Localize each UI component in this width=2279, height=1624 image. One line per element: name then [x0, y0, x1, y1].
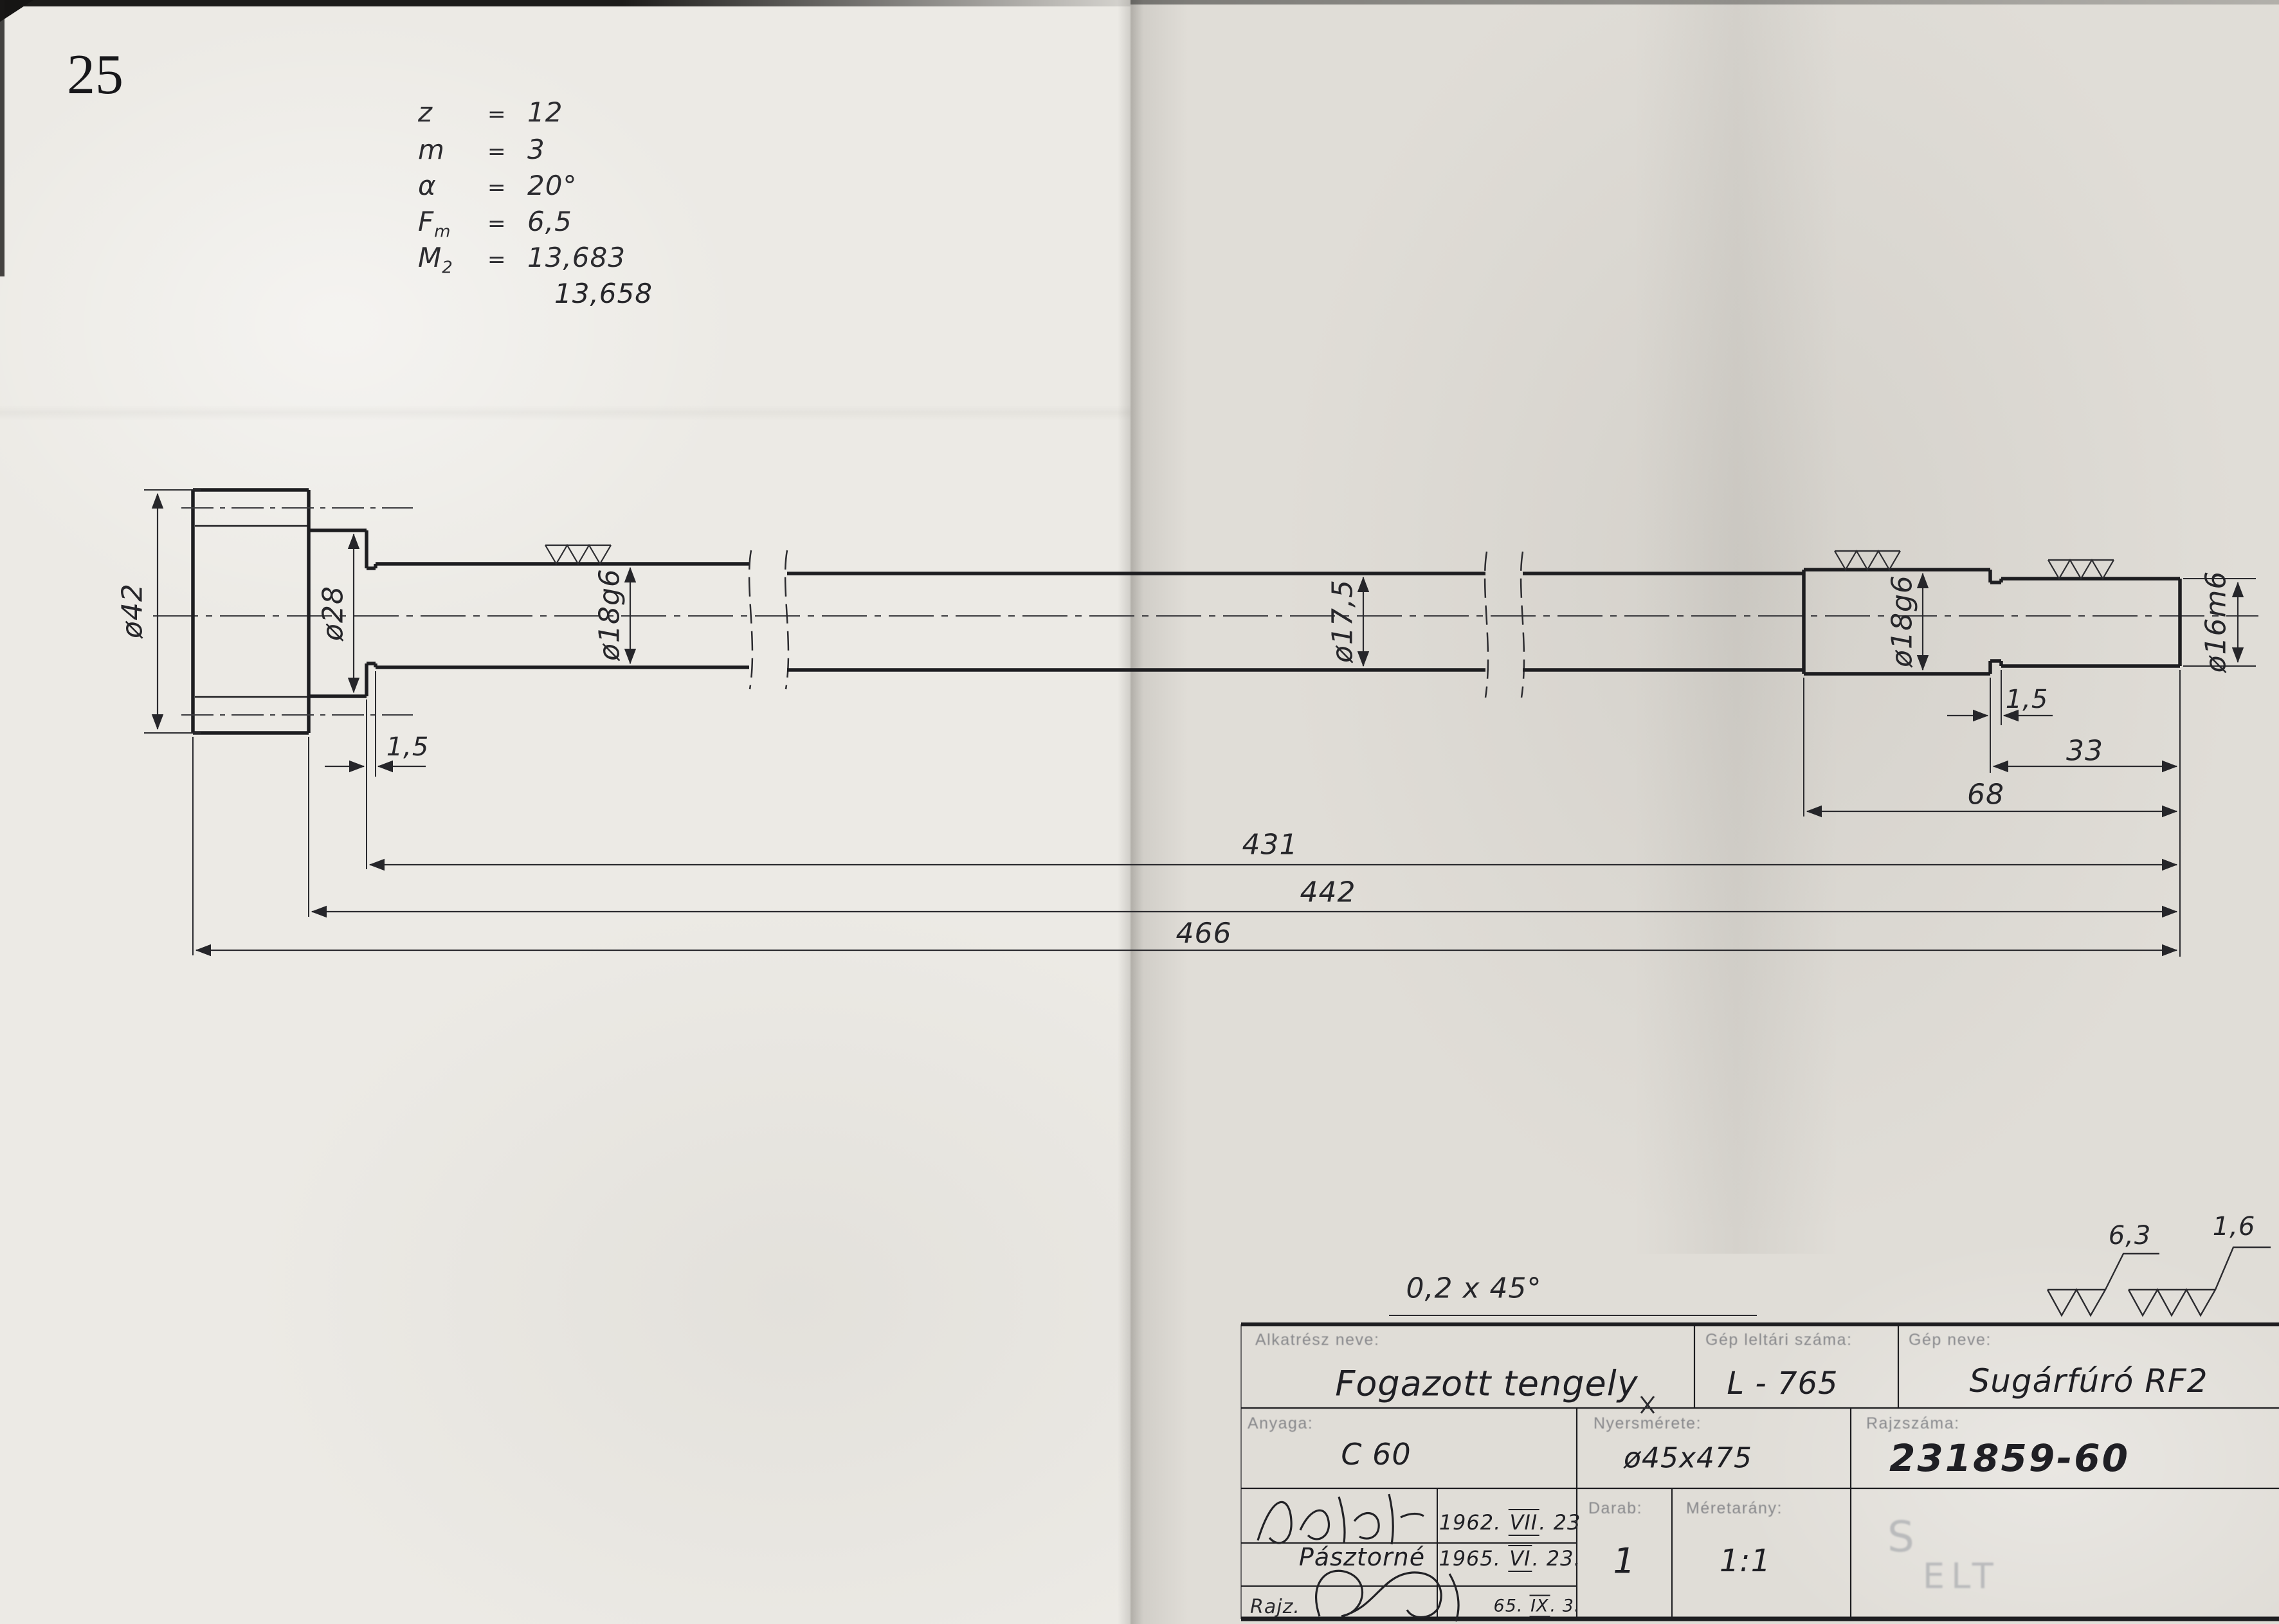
machine-no-value: L - 765: [1727, 1366, 1838, 1402]
date-row2: 1965. VI. 23.: [1439, 1546, 1581, 1571]
signature-row1: [1258, 1494, 1424, 1544]
drawn-label: Rajz.: [1250, 1596, 1300, 1618]
part-name-label: Alkatrész neve:: [1255, 1331, 1379, 1349]
scale-value: 1:1: [1720, 1543, 1771, 1579]
date1-month: VII: [1508, 1509, 1539, 1536]
roughness-mark-journal-right-icon: [1835, 551, 1900, 570]
date3-day: . 3.: [1550, 1596, 1581, 1616]
dim-dia-collar: ø28: [317, 586, 350, 641]
dim-groove-left: 1,5: [386, 732, 430, 762]
legend-roughness-coarse-icon: [2047, 1254, 2159, 1315]
part-name-value: Fogazott tengely: [1335, 1364, 1638, 1404]
qty-value: 1: [1613, 1541, 1635, 1582]
qty-label: Darab:: [1588, 1499, 1642, 1518]
date2-day: . 23.: [1532, 1546, 1581, 1571]
machine-no-label: Gép leltári száma:: [1705, 1331, 1852, 1349]
stock-value: ø45x475: [1624, 1442, 1752, 1475]
shaft-section-2: [787, 573, 1485, 670]
material-label: Anyaga:: [1248, 1414, 1313, 1433]
number-label: Rajzszáma:: [1866, 1414, 1960, 1433]
roughness-mark-journal-left-icon: [545, 545, 611, 564]
date1-year: 1962.: [1439, 1510, 1502, 1535]
gear-outline: [193, 490, 309, 733]
shaft-section-3-4: [1523, 570, 1990, 674]
material-value: C 60: [1341, 1437, 1411, 1472]
break-lines-1: [749, 550, 788, 689]
dim-dia-gear: ø42: [116, 583, 149, 638]
signer2-name: Pásztorné: [1299, 1543, 1425, 1571]
length-dimension-lines: [196, 716, 2177, 950]
dim-len-431: 431: [1242, 829, 1298, 862]
chamfer-note: 0,2 x 45°: [1406, 1272, 1542, 1305]
date3-month: IX: [1529, 1595, 1550, 1618]
stock-check-mark: [1641, 1396, 1654, 1413]
machine-name-label: Gép neve:: [1909, 1331, 1992, 1349]
stock-label: Nyersmérete:: [1593, 1414, 1702, 1433]
dim-dia-journal-left: ø18g6: [594, 568, 626, 661]
dim-dia-middle: ø17,5: [1327, 579, 1359, 663]
shaft-drawing: [0, 0, 2279, 1624]
dim-groove-right: 1,5: [2006, 685, 2049, 714]
scale-label: Méretarány:: [1686, 1499, 1783, 1518]
legend-value-coarse: 6,3: [2109, 1221, 2152, 1250]
dim-dia-end: ø16m6: [2200, 571, 2233, 673]
dim-len-33: 33: [2066, 735, 2103, 768]
dim-len-68: 68: [1967, 779, 2004, 811]
number-value: 231859-60: [1889, 1436, 2130, 1480]
legend-roughness-fine-icon: [2129, 1247, 2271, 1315]
dim-len-466: 466: [1176, 917, 1232, 950]
date2-year: 1965.: [1439, 1546, 1501, 1571]
date-row1: 1962. VII. 23: [1439, 1510, 1581, 1535]
dim-dia-journal-right: ø18g6: [1886, 575, 1919, 667]
legend-value-fine: 1,6: [2213, 1212, 2256, 1241]
faint-stamp-text: ELT: [1923, 1556, 2000, 1596]
shaft-end-section: [1990, 570, 2180, 674]
extension-lines: [144, 490, 2256, 957]
date-row3: 65. IX. 3.: [1494, 1596, 1581, 1616]
diameter-dimension-lines: [158, 494, 2238, 729]
roughness-mark-end-icon: [2048, 560, 2114, 579]
date2-month: VI: [1508, 1545, 1532, 1572]
dim-len-442: 442: [1300, 876, 1356, 909]
date1-day: . 23: [1539, 1510, 1581, 1535]
machine-name-value: Sugárfúró RF2: [1969, 1362, 2208, 1400]
break-lines-2: [1485, 552, 1524, 698]
gear-pitch-lines: [181, 508, 413, 715]
date3-year: 65.: [1494, 1596, 1523, 1616]
faint-stamp-s: S: [1887, 1512, 1915, 1562]
